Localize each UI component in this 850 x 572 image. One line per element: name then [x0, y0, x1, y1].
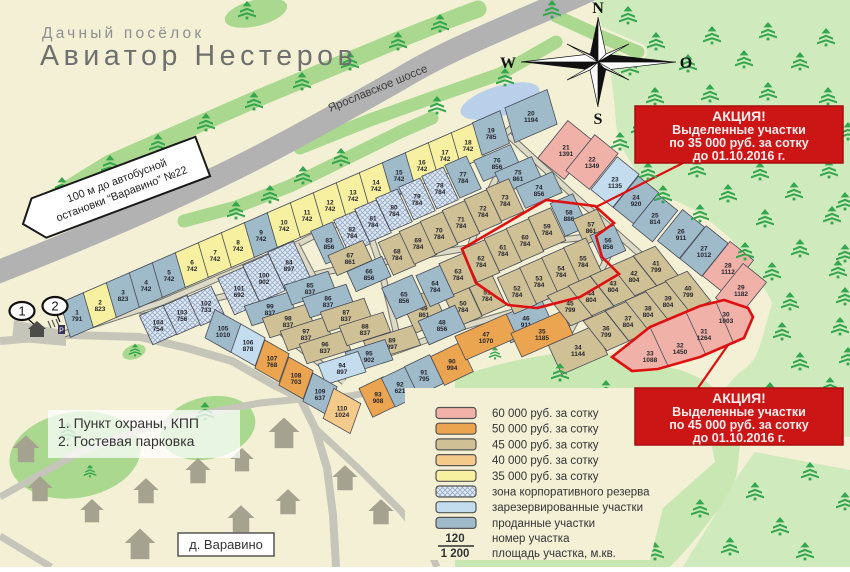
svg-text:837: 837: [341, 316, 352, 323]
svg-text:897: 897: [337, 369, 348, 376]
svg-text:911: 911: [676, 235, 687, 242]
svg-text:1024: 1024: [335, 412, 350, 419]
svg-text:692: 692: [234, 292, 245, 299]
svg-text:837: 837: [323, 302, 334, 309]
svg-text:784: 784: [500, 201, 511, 208]
svg-text:1185: 1185: [535, 335, 549, 342]
svg-text:856: 856: [364, 275, 375, 282]
svg-text:45 000 руб. за сотку: 45 000 руб. за сотку: [492, 439, 599, 451]
svg-text:784: 784: [512, 292, 523, 299]
svg-text:2: 2: [51, 299, 58, 314]
svg-text:АКЦИЯ!: АКЦИЯ!: [712, 108, 766, 124]
svg-text:742: 742: [463, 146, 474, 153]
svg-text:до 01.10.2016 г.: до 01.10.2016 г.: [693, 149, 786, 163]
svg-text:791: 791: [72, 316, 83, 323]
svg-text:703: 703: [291, 379, 302, 386]
svg-text:2. Гостевая парковка: 2. Гостевая парковка: [58, 433, 195, 449]
svg-text:784: 784: [520, 241, 531, 248]
svg-text:742: 742: [164, 276, 175, 283]
svg-text:Авиатор Нестеров: Авиатор Нестеров: [40, 40, 357, 72]
svg-text:742: 742: [348, 196, 359, 203]
svg-text:номер участка: номер участка: [492, 533, 570, 545]
svg-text:799: 799: [565, 307, 576, 314]
svg-text:784: 784: [430, 287, 441, 294]
svg-text:795: 795: [419, 376, 430, 383]
svg-text:35 000 руб. за сотку: 35 000 руб. за сотку: [492, 471, 599, 483]
svg-text:W: W: [500, 55, 516, 72]
svg-text:1: 1: [18, 304, 25, 319]
svg-text:856: 856: [437, 326, 448, 333]
svg-text:проданные участки: проданные участки: [492, 518, 595, 530]
svg-text:784: 784: [434, 234, 445, 241]
svg-text:1450: 1450: [673, 349, 688, 356]
svg-text:742: 742: [417, 166, 428, 173]
svg-text:S: S: [594, 111, 603, 128]
svg-text:площадь участка, м.кв.: площадь участка, м.кв.: [492, 548, 616, 560]
svg-text:804: 804: [643, 312, 654, 319]
svg-text:856: 856: [324, 244, 335, 251]
svg-text:1194: 1194: [524, 117, 538, 124]
svg-text:804: 804: [663, 302, 674, 309]
svg-text:40 000 руб. за сотку: 40 000 руб. за сотку: [492, 455, 599, 467]
svg-text:784: 784: [435, 189, 446, 196]
svg-text:742: 742: [394, 176, 405, 183]
svg-text:742: 742: [302, 216, 313, 223]
svg-text:по 35 000 руб. за сотку: по 35 000 руб. за сотку: [669, 136, 809, 150]
svg-text:д. Варавино: д. Варавино: [189, 537, 263, 552]
svg-text:1182: 1182: [734, 291, 748, 298]
svg-text:1349: 1349: [585, 163, 600, 170]
svg-text:742: 742: [141, 286, 152, 293]
svg-text:799: 799: [601, 332, 612, 339]
svg-text:799: 799: [651, 267, 662, 274]
svg-text:Выделенные участки: Выделенные участки: [672, 405, 806, 419]
svg-text:804: 804: [608, 287, 619, 294]
svg-text:784: 784: [534, 282, 545, 289]
svg-text:784: 784: [368, 222, 379, 229]
svg-text:1070: 1070: [479, 338, 494, 345]
svg-text:837: 837: [360, 330, 371, 337]
svg-text:1264: 1264: [697, 335, 712, 342]
svg-text:784: 784: [347, 233, 358, 240]
svg-text:O: O: [680, 55, 692, 72]
svg-text:823: 823: [95, 306, 106, 313]
svg-text:768: 768: [267, 362, 278, 369]
svg-text:784: 784: [413, 244, 424, 251]
svg-text:823: 823: [118, 296, 129, 303]
svg-text:784: 784: [458, 178, 469, 185]
svg-text:784: 784: [542, 230, 553, 237]
svg-text:756: 756: [177, 316, 188, 323]
svg-text:P: P: [59, 328, 64, 335]
svg-text:784: 784: [392, 255, 403, 262]
svg-text:784: 784: [498, 251, 509, 258]
svg-text:861: 861: [513, 176, 524, 183]
svg-text:814: 814: [650, 219, 661, 226]
svg-text:742: 742: [256, 236, 267, 243]
svg-text:742: 742: [325, 206, 336, 213]
svg-text:754: 754: [153, 326, 164, 333]
svg-text:920: 920: [631, 201, 642, 208]
svg-text:784: 784: [389, 211, 400, 218]
svg-text:897: 897: [284, 266, 295, 273]
svg-text:1 200: 1 200: [441, 548, 470, 560]
svg-text:902: 902: [259, 279, 270, 286]
svg-text:902: 902: [364, 357, 375, 364]
svg-text:784: 784: [458, 307, 469, 314]
svg-text:742: 742: [233, 246, 244, 253]
svg-text:742: 742: [187, 266, 198, 273]
svg-text:784: 784: [453, 275, 464, 282]
svg-text:784: 784: [478, 212, 489, 219]
svg-text:1112: 1112: [721, 269, 735, 276]
svg-text:804: 804: [586, 297, 597, 304]
svg-text:1144: 1144: [571, 351, 585, 358]
svg-text:742: 742: [210, 256, 221, 263]
svg-text:1012: 1012: [697, 252, 712, 259]
svg-text:АКЦИЯ!: АКЦИЯ!: [712, 390, 766, 406]
svg-text:878: 878: [243, 346, 254, 353]
svg-text:784: 784: [578, 262, 589, 269]
svg-text:637: 637: [315, 395, 326, 402]
svg-text:784: 784: [412, 200, 423, 207]
svg-text:50 000 руб. за сотку: 50 000 руб. за сотку: [492, 424, 599, 436]
svg-text:1391: 1391: [559, 151, 574, 158]
svg-text:по 45 000 руб. за сотку: по 45 000 руб. за сотку: [669, 418, 809, 432]
svg-text:784: 784: [556, 272, 567, 279]
svg-text:60 000 руб. за сотку: 60 000 руб. за сотку: [492, 408, 599, 420]
svg-text:742: 742: [279, 226, 290, 233]
svg-text:784: 784: [482, 296, 493, 303]
svg-text:1. Пункт охраны, КПП: 1. Пункт охраны, КПП: [58, 415, 199, 431]
svg-text:120: 120: [445, 533, 464, 545]
svg-text:856: 856: [603, 244, 614, 251]
svg-text:799: 799: [683, 292, 694, 299]
svg-text:до 01.10.2016 г.: до 01.10.2016 г.: [693, 431, 786, 445]
svg-text:784: 784: [476, 262, 487, 269]
svg-text:742: 742: [371, 186, 382, 193]
svg-text:861: 861: [345, 259, 356, 266]
svg-text:804: 804: [629, 277, 640, 284]
svg-text:1088: 1088: [643, 357, 658, 364]
svg-text:908: 908: [373, 398, 384, 405]
svg-text:785: 785: [486, 134, 497, 141]
svg-text:856: 856: [399, 298, 410, 305]
svg-text:742: 742: [440, 156, 451, 163]
svg-text:зона корпоративного резерва: зона корпоративного резерва: [492, 487, 650, 499]
svg-text:1135: 1135: [608, 183, 622, 190]
svg-text:1010: 1010: [216, 332, 231, 339]
svg-text:N: N: [592, 0, 604, 17]
svg-text:733: 733: [201, 307, 212, 314]
svg-text:621: 621: [395, 388, 406, 395]
svg-text:Выделенные участки: Выделенные участки: [672, 123, 806, 137]
svg-text:1003: 1003: [719, 318, 734, 325]
svg-text:856: 856: [534, 191, 545, 198]
svg-text:994: 994: [447, 365, 458, 372]
svg-text:зарезервированные участки: зарезервированные участки: [492, 502, 643, 514]
svg-text:804: 804: [623, 322, 634, 329]
svg-text:837: 837: [320, 348, 331, 355]
svg-text:784: 784: [456, 223, 467, 230]
